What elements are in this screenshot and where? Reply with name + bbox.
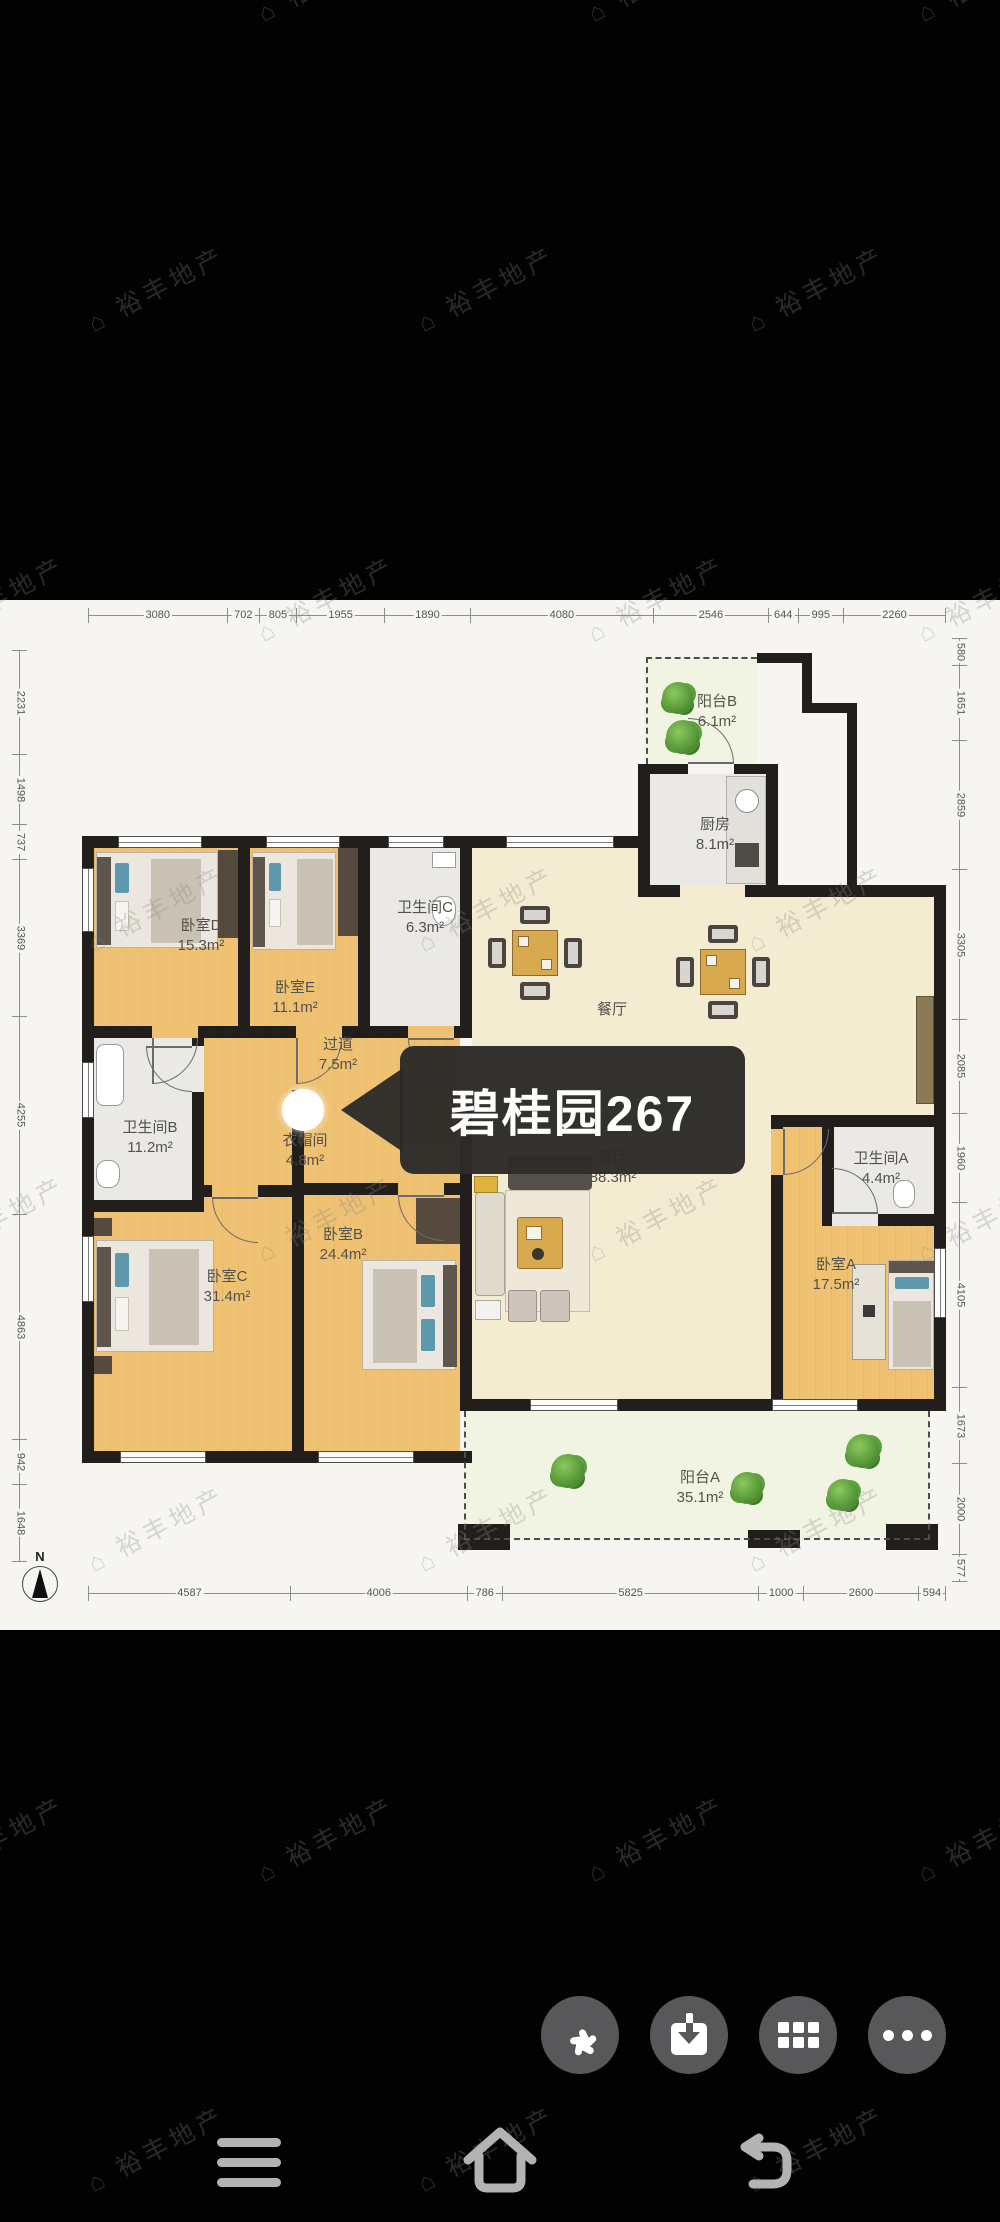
element: 15.3m² bbox=[178, 936, 225, 956]
room-label-balconyA: 阳台A35.1m² bbox=[677, 1468, 724, 1508]
element: 942 bbox=[14, 1451, 26, 1473]
element: 2231 bbox=[14, 688, 26, 716]
element: 31.4m² bbox=[204, 1287, 251, 1307]
dimension-segment: 2085 bbox=[952, 1019, 967, 1114]
watermark: ⌂ 裕丰地产 bbox=[0, 1786, 72, 1889]
door-opening bbox=[771, 1129, 783, 1175]
plant-icon bbox=[731, 1472, 763, 1504]
element: 卧室D bbox=[178, 916, 225, 936]
watermark: ⌂ 裕丰地产 bbox=[910, 0, 1000, 30]
element: 1960 bbox=[954, 1144, 966, 1172]
element bbox=[217, 2178, 281, 2187]
element: 1498 bbox=[14, 775, 26, 803]
element: 4105 bbox=[954, 1281, 966, 1309]
watermark: ⌂ 裕丰地产 bbox=[250, 0, 401, 30]
blanket bbox=[149, 1249, 199, 1345]
element bbox=[808, 2037, 819, 2048]
wall-segment bbox=[934, 885, 946, 1411]
pillow bbox=[269, 899, 281, 927]
apps-grid-button[interactable] bbox=[759, 1996, 837, 2074]
element: 1000 bbox=[767, 1588, 795, 1600]
element: 737 bbox=[14, 831, 26, 853]
headboard bbox=[889, 1261, 935, 1273]
dimensions-bottom: 45874006786582510002600594 bbox=[88, 1586, 946, 1601]
element: 11.2m² bbox=[122, 1138, 177, 1158]
toilet bbox=[96, 1160, 120, 1188]
window bbox=[530, 1399, 618, 1411]
room-label-bathC: 卫生间C6.3m² bbox=[397, 898, 453, 938]
element: 580 bbox=[954, 641, 966, 663]
chair bbox=[520, 982, 550, 1000]
window bbox=[82, 1236, 94, 1302]
watermark: ⌂ 裕丰地产 bbox=[910, 1786, 1000, 1889]
element bbox=[678, 2032, 700, 2044]
ottoman bbox=[540, 1290, 570, 1322]
bathtub bbox=[96, 1044, 124, 1106]
element bbox=[778, 2022, 789, 2033]
wardrobe bbox=[338, 846, 358, 936]
bed bbox=[252, 852, 336, 950]
sink bbox=[735, 789, 759, 813]
element: 8.1m² bbox=[696, 835, 734, 855]
element: 2260 bbox=[880, 610, 908, 622]
headboard bbox=[97, 1247, 111, 1347]
element: 2600 bbox=[847, 1588, 875, 1600]
dimension-segment: 5825 bbox=[502, 1586, 758, 1601]
wall-segment bbox=[304, 1183, 398, 1195]
more-ellipsis-icon bbox=[883, 2030, 932, 2041]
watermark: ⌂ 裕丰地产 bbox=[0, 0, 72, 30]
dining-table bbox=[512, 930, 558, 976]
element: 厨房 bbox=[696, 815, 734, 835]
dimension-segment: 2859 bbox=[952, 740, 967, 869]
listing-title: 碧桂园267 bbox=[450, 1074, 695, 1146]
wall-segment bbox=[358, 836, 370, 1034]
window bbox=[266, 836, 340, 848]
compass-north-label: N bbox=[16, 1550, 64, 1564]
room-label-cloakroom: 衣帽间4.8m² bbox=[282, 1131, 327, 1171]
headboard bbox=[443, 1265, 457, 1367]
element: 1673 bbox=[954, 1412, 966, 1440]
pillow bbox=[421, 1275, 435, 1307]
element bbox=[863, 1305, 875, 1317]
dining-set bbox=[676, 925, 770, 1019]
dimension-segment: 2000 bbox=[952, 1463, 967, 1554]
room-label-kitchen: 厨房8.1m² bbox=[696, 815, 734, 855]
element: 4.8m² bbox=[282, 1151, 327, 1171]
element: 3305 bbox=[954, 930, 966, 958]
window bbox=[772, 1399, 858, 1411]
element: 衣帽间 bbox=[282, 1131, 327, 1151]
element: 6.3m² bbox=[397, 918, 453, 938]
chair bbox=[676, 957, 694, 987]
headboard bbox=[253, 857, 265, 947]
pillow bbox=[895, 1277, 929, 1289]
dimension-segment: 4255 bbox=[12, 1016, 27, 1214]
dimension-segment: 4105 bbox=[952, 1202, 967, 1387]
window bbox=[82, 1062, 94, 1118]
dimension-segment: 2260 bbox=[843, 608, 946, 623]
dimension-segment: 1498 bbox=[12, 754, 27, 824]
element: 4006 bbox=[365, 1588, 393, 1600]
dimension-segment: 1955 bbox=[296, 608, 384, 623]
home-icon bbox=[460, 2122, 540, 2198]
nav-home-button[interactable] bbox=[460, 2120, 540, 2200]
element: 卧室C bbox=[204, 1267, 251, 1287]
dining-table bbox=[700, 949, 746, 995]
element: 卫生间C bbox=[397, 898, 453, 918]
element: 1651 bbox=[954, 689, 966, 717]
floorplan-image[interactable]: 308070280519551890408025466449952260 458… bbox=[0, 600, 1000, 1630]
element bbox=[902, 2030, 913, 2041]
element: 3080 bbox=[144, 610, 172, 622]
element: 卫生间A bbox=[853, 1149, 908, 1169]
bed bbox=[362, 1260, 456, 1370]
dining-set bbox=[488, 906, 582, 1000]
listing-title-banner: 碧桂园267 bbox=[400, 1046, 745, 1174]
more-button[interactable] bbox=[868, 1996, 946, 2074]
plant-icon bbox=[662, 682, 694, 714]
element: 4.4m² bbox=[853, 1169, 908, 1189]
watermark: ⌂ 裕丰地产 bbox=[410, 236, 561, 339]
sideboard bbox=[916, 996, 934, 1104]
dimension-segment: 3305 bbox=[952, 869, 967, 1018]
banner-tail bbox=[341, 1068, 403, 1152]
element bbox=[778, 2037, 789, 2048]
room-label-bedroomB: 卧室B24.4m² bbox=[320, 1225, 367, 1265]
dimension-segment: 3369 bbox=[12, 859, 27, 1016]
wall-segment bbox=[444, 1183, 472, 1195]
element: 702 bbox=[232, 610, 254, 622]
back-icon bbox=[731, 2128, 795, 2192]
apps-grid-icon bbox=[778, 2022, 819, 2048]
element bbox=[793, 2022, 804, 2033]
dimension-segment: 1000 bbox=[758, 1586, 803, 1601]
element: 1890 bbox=[413, 610, 441, 622]
dimension-segment: 1960 bbox=[952, 1113, 967, 1202]
door-opening bbox=[152, 1026, 198, 1038]
pillow bbox=[115, 863, 129, 893]
dimension-segment: 580 bbox=[952, 638, 967, 665]
plant-icon bbox=[551, 1454, 585, 1488]
share-app-button[interactable] bbox=[541, 1996, 619, 2074]
chair bbox=[488, 938, 506, 968]
blanket bbox=[373, 1269, 417, 1363]
element: 阳台A bbox=[677, 1468, 724, 1488]
element: 2085 bbox=[954, 1052, 966, 1080]
window bbox=[934, 1248, 946, 1318]
dashed-railing bbox=[646, 657, 648, 764]
chair bbox=[564, 938, 582, 968]
wall-segment bbox=[745, 885, 946, 897]
element bbox=[217, 2158, 281, 2167]
element: 2546 bbox=[697, 610, 725, 622]
dashed-railing bbox=[464, 1538, 930, 1540]
dimensions-right: 58016512859330520851960410516732000577 bbox=[952, 638, 967, 1582]
door-arc bbox=[212, 1197, 258, 1243]
nightstand bbox=[92, 1218, 112, 1236]
wall-segment bbox=[766, 764, 778, 892]
blanket bbox=[297, 859, 333, 945]
dimension-segment: 4006 bbox=[290, 1586, 467, 1601]
screen: 308070280519551890408025466449952260 458… bbox=[0, 0, 1000, 2222]
element: 4255 bbox=[14, 1101, 26, 1129]
element bbox=[793, 2037, 804, 2048]
element: 577 bbox=[954, 1557, 966, 1579]
element: 4863 bbox=[14, 1313, 26, 1341]
room-label-bedroomA: 卧室A17.5m² bbox=[813, 1255, 860, 1295]
element: 6.1m² bbox=[697, 712, 737, 732]
pillow bbox=[115, 1253, 129, 1287]
element: 阳台B bbox=[697, 692, 737, 712]
pillow bbox=[115, 1297, 129, 1331]
compass-needle-icon bbox=[32, 1569, 48, 1598]
window bbox=[388, 836, 444, 848]
dimension-segment: 3080 bbox=[88, 608, 227, 623]
room-label-bedroomC: 卧室C31.4m² bbox=[204, 1267, 251, 1307]
download-button[interactable] bbox=[650, 1996, 728, 2074]
sink bbox=[432, 852, 456, 868]
room-label-bathB: 卫生间B11.2m² bbox=[122, 1118, 177, 1158]
bed bbox=[888, 1260, 934, 1370]
element: 卫生间B bbox=[122, 1118, 177, 1138]
element: 786 bbox=[474, 1588, 496, 1600]
wall-segment bbox=[82, 1200, 204, 1212]
dimension-segment: 702 bbox=[227, 608, 259, 623]
element: 24.4m² bbox=[320, 1245, 367, 1265]
element: 5825 bbox=[616, 1588, 644, 1600]
chair bbox=[520, 906, 550, 924]
watermark: ⌂ 裕丰地产 bbox=[580, 1786, 731, 1889]
pillow bbox=[115, 901, 129, 931]
sofa bbox=[475, 1192, 505, 1296]
chair bbox=[752, 957, 770, 987]
ottoman bbox=[508, 1290, 537, 1322]
element: 1648 bbox=[14, 1509, 26, 1537]
element: 卧室E bbox=[272, 978, 318, 998]
dimension-segment: 644 bbox=[768, 608, 798, 623]
element: 644 bbox=[772, 610, 794, 622]
wall-segment bbox=[638, 764, 650, 892]
window bbox=[318, 1451, 414, 1463]
element: 卧室A bbox=[813, 1255, 860, 1275]
watermark: ⌂ 裕丰地产 bbox=[580, 0, 731, 30]
element: 17.5m² bbox=[813, 1275, 860, 1295]
dimension-segment: 995 bbox=[798, 608, 843, 623]
dimension-segment: 805 bbox=[259, 608, 296, 623]
pinwheel-share-icon bbox=[557, 2012, 603, 2058]
dimension-segment: 2600 bbox=[803, 1586, 918, 1601]
headboard bbox=[97, 857, 111, 945]
element: 餐厅 bbox=[597, 1000, 627, 1020]
element: 过道 bbox=[319, 1035, 357, 1055]
compass: N bbox=[16, 1550, 64, 1612]
element bbox=[883, 2030, 894, 2041]
plant-icon bbox=[827, 1479, 859, 1511]
watermark: ⌂ 裕丰地产 bbox=[250, 1786, 401, 1889]
wall-segment bbox=[886, 1524, 938, 1550]
element: 35.1m² bbox=[677, 1488, 724, 1508]
dimension-segment: 4587 bbox=[88, 1586, 290, 1601]
menu-icon bbox=[217, 2138, 281, 2147]
window bbox=[506, 836, 614, 848]
element bbox=[479, 2156, 521, 2188]
element: 4587 bbox=[175, 1588, 203, 1600]
wall-segment bbox=[204, 1185, 212, 1197]
room-label-bathA: 卫生间A4.4m² bbox=[853, 1149, 908, 1189]
dimension-segment: 4080 bbox=[470, 608, 653, 623]
room-label-dining: 餐厅 bbox=[597, 1000, 627, 1020]
wall-segment bbox=[638, 885, 680, 897]
dimension-segment: 1651 bbox=[952, 665, 967, 740]
watermark: ⌂ 裕丰地产 bbox=[740, 236, 891, 339]
window bbox=[120, 1451, 206, 1463]
element bbox=[526, 1226, 542, 1240]
nightstand bbox=[92, 1356, 112, 1374]
room-label-bedroomD: 卧室D15.3m² bbox=[178, 916, 225, 956]
nav-back-button[interactable] bbox=[731, 2128, 795, 2192]
stove bbox=[735, 843, 759, 867]
element: 594 bbox=[921, 1588, 943, 1600]
element bbox=[921, 2030, 932, 2041]
element: 805 bbox=[267, 610, 289, 622]
dimension-segment: 786 bbox=[467, 1586, 502, 1601]
element: 4080 bbox=[548, 610, 576, 622]
location-pin-dot bbox=[282, 1089, 324, 1131]
dimension-segment: 577 bbox=[952, 1554, 967, 1582]
blanket bbox=[893, 1301, 931, 1367]
dimension-segment: 1673 bbox=[952, 1387, 967, 1463]
dimensions-top: 308070280519551890408025466449952260 bbox=[88, 608, 946, 623]
element bbox=[532, 1248, 544, 1260]
element bbox=[808, 2022, 819, 2033]
element: 11.1m² bbox=[272, 998, 318, 1018]
element: 卧室B bbox=[320, 1225, 367, 1245]
door-arc bbox=[398, 1195, 444, 1241]
wall-segment bbox=[238, 836, 250, 1034]
wall-segment bbox=[847, 703, 857, 897]
side-table bbox=[474, 1176, 498, 1193]
element: 2000 bbox=[954, 1495, 966, 1523]
coffee-table bbox=[517, 1217, 563, 1269]
dimension-segment: 942 bbox=[12, 1439, 27, 1484]
dimension-segment: 2231 bbox=[12, 650, 27, 754]
window bbox=[118, 836, 202, 848]
wall-segment bbox=[638, 764, 688, 774]
room-label-balconyB: 阳台B6.1m² bbox=[697, 692, 737, 732]
dimension-segment: 1890 bbox=[384, 608, 469, 623]
download-icon bbox=[671, 2013, 707, 2057]
nav-menu-button[interactable] bbox=[209, 2131, 289, 2193]
room-label-bedroomE: 卧室E11.1m² bbox=[272, 978, 318, 1018]
pillow bbox=[421, 1319, 435, 1351]
dashed-railing bbox=[928, 1411, 930, 1540]
wall-segment bbox=[771, 1115, 946, 1127]
dashed-railing bbox=[646, 657, 757, 659]
element: 995 bbox=[810, 610, 832, 622]
cabinet bbox=[475, 1300, 501, 1320]
element: 1955 bbox=[326, 610, 354, 622]
dimension-segment: 2546 bbox=[653, 608, 768, 623]
door-opening bbox=[832, 1214, 878, 1226]
dashed-railing bbox=[464, 1411, 466, 1540]
element bbox=[671, 2023, 707, 2055]
dimension-segment: 737 bbox=[12, 824, 27, 859]
dimension-segment: 4863 bbox=[12, 1214, 27, 1440]
watermark: ⌂ 裕丰地产 bbox=[80, 236, 231, 339]
door-arc bbox=[783, 1129, 829, 1175]
pillow bbox=[269, 863, 281, 891]
bed bbox=[96, 1240, 214, 1352]
door-opening bbox=[408, 1026, 454, 1038]
window bbox=[82, 868, 94, 932]
dimension-segment: 594 bbox=[918, 1586, 946, 1601]
chair bbox=[708, 925, 738, 943]
wall-segment bbox=[292, 1197, 304, 1463]
dimensions-left: 223114987373369425548639421648 bbox=[12, 650, 27, 1562]
element: 2859 bbox=[954, 791, 966, 819]
chair bbox=[708, 1001, 738, 1019]
element: 3369 bbox=[14, 924, 26, 952]
plant-icon bbox=[846, 1434, 880, 1468]
door-arc bbox=[146, 1046, 192, 1092]
wall-segment bbox=[460, 836, 472, 1034]
